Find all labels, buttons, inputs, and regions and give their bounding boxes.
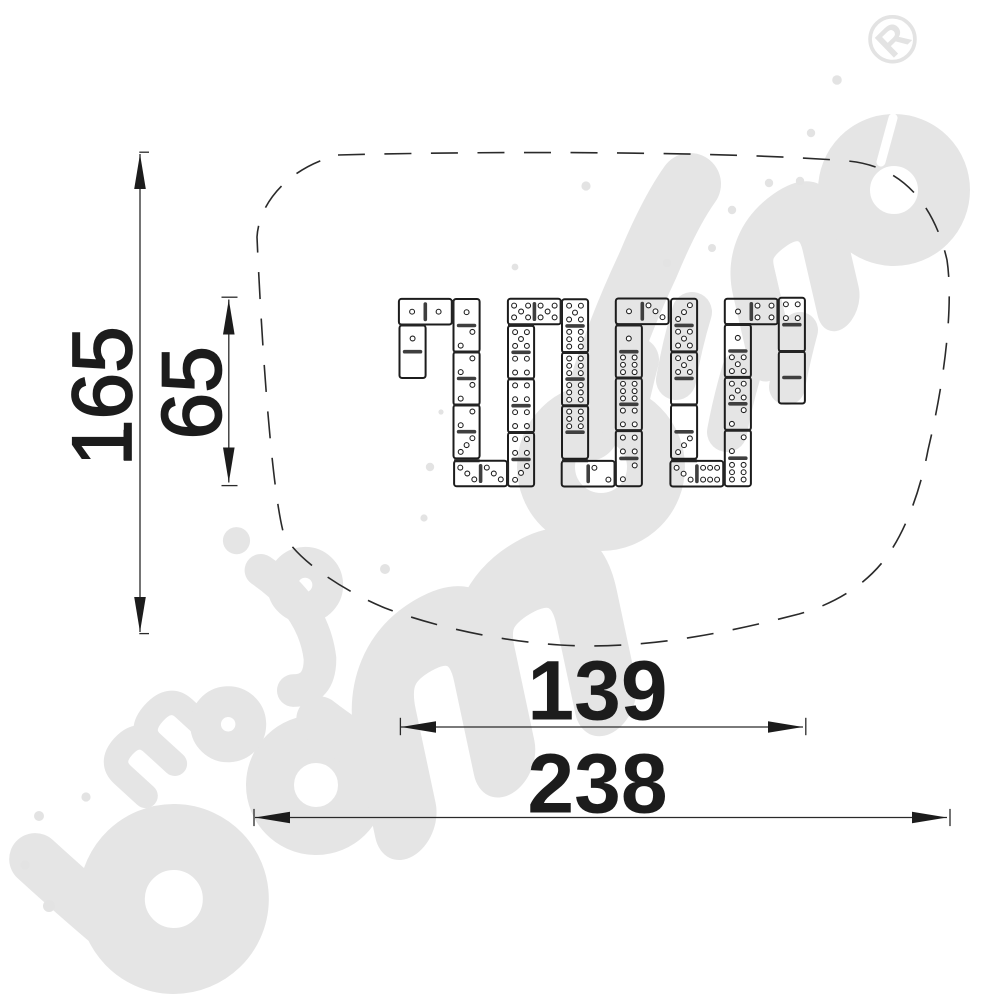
svg-text:139: 139 [527, 643, 667, 737]
svg-text:238: 238 [527, 736, 667, 830]
svg-text:65: 65 [145, 346, 239, 439]
svg-text:165: 165 [55, 326, 149, 466]
svg-text:R: R [868, 14, 919, 66]
